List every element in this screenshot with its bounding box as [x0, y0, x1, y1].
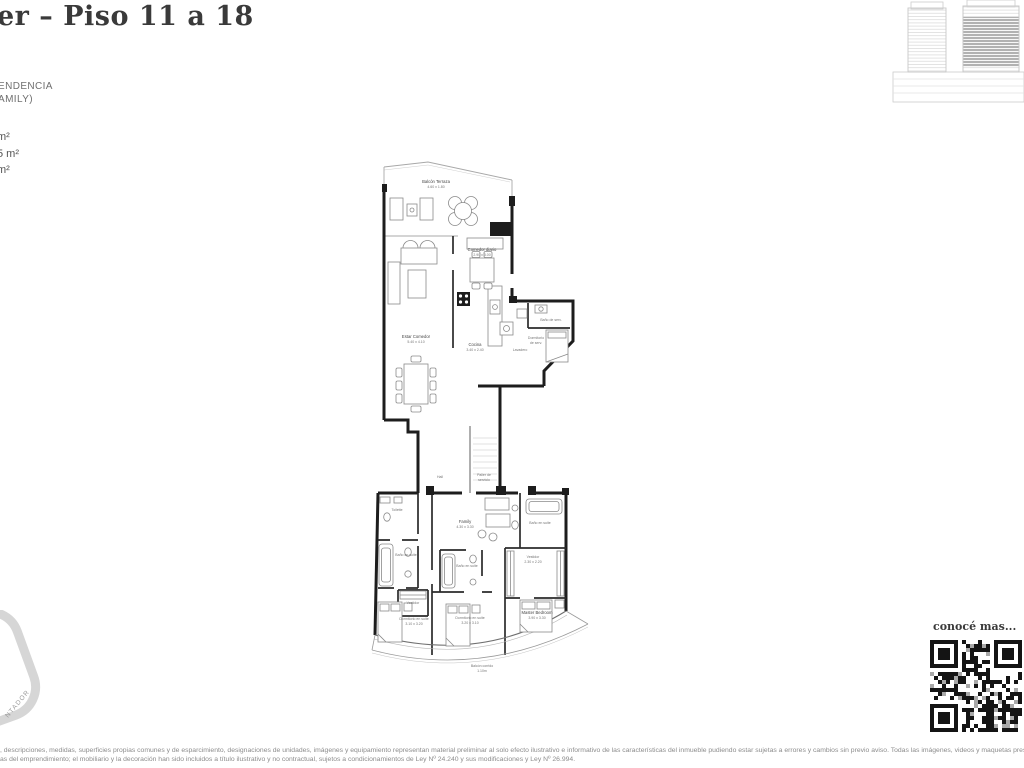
tower-right-highlighted — [963, 0, 1019, 72]
disclaimer-line1: , descripciones, medidas, superficies pr… — [0, 746, 1024, 755]
room-dims-estar-comedor: 5.40 x 4.10 — [407, 340, 424, 344]
area-line: 5 m² — [0, 146, 19, 163]
room-label-estar-comedor: Estar Comedor — [402, 334, 431, 339]
room-dims-balcon-terraza: 4.60 x 1.80 — [427, 185, 444, 189]
room-dims-dorm-suite-izq: 3.10 x 3.20 — [405, 622, 422, 626]
room-label-palier-1: Palier de — [477, 473, 491, 477]
base-podium — [893, 72, 1024, 102]
room-label-family: Family — [459, 519, 472, 524]
room-label-dorm-suite-izq: Dormitorio en suite — [399, 617, 428, 621]
page-title: er – Piso 11 a 18 — [0, 1, 254, 32]
room-label-toilette: Toilette — [391, 508, 402, 512]
family-room-icons — [478, 498, 510, 541]
room-label-comedor-diario: Comedor diario — [468, 247, 497, 252]
unit-type-line2: AMILY) — [0, 93, 53, 106]
room-dims-cocina: 3.40 x 2.40 — [466, 348, 483, 352]
room-dims-vestidor-der: 2.30 x 2.20 — [524, 560, 541, 564]
unit-areas: m² 5 m² m² — [0, 129, 19, 179]
room-label-dorm-serv-2: de serv. — [530, 341, 542, 345]
room-label-bano-suite-der: Baño en suite — [529, 521, 550, 525]
developer-stamp: NTADOR — [0, 610, 88, 768]
room-label-bano-serv: Baño de serv. — [540, 318, 561, 322]
room-dims-comedor-diario: 2.90 x 3.00 — [473, 253, 490, 257]
service-rooms-icons — [500, 305, 568, 362]
qr-caption: conocé mas... — [933, 620, 1016, 633]
room-label-vestidor-der: Vestidor — [527, 555, 540, 559]
room-label-hall: Hall — [437, 475, 443, 479]
room-label-palier-2: servicio — [478, 478, 490, 482]
room-dims-dorm-suite-ctr: 3.20 x 3.10 — [461, 621, 478, 625]
building-elevation-diagram — [885, 0, 1024, 115]
room-label-dorm-serv-1: Dormitorio — [528, 336, 544, 340]
room-label-cocina: Cocina — [468, 342, 482, 347]
living-room-furniture-icons — [388, 241, 437, 305]
unit-type-line1: ENDENCIA — [0, 80, 53, 93]
disclaimer-line2: as del emprendimiento; el mobiliario y l… — [0, 755, 1024, 764]
room-label-master: Master Bedroom — [522, 610, 553, 615]
bathroom-center-icons — [442, 554, 476, 588]
room-dims-balcon-corrido: 1.10m — [477, 669, 487, 673]
room-label-balcon-terraza: Balcón Terraza — [422, 179, 451, 184]
bathroom-left-icons — [379, 544, 411, 586]
qr-code — [930, 640, 1022, 732]
room-dims-master: 3.90 x 3.30 — [528, 616, 545, 620]
room-label-lavadero: Lavadero — [513, 348, 528, 352]
area-line: m² — [0, 129, 19, 146]
room-label-dorm-suite-ctr: Dormitorio en suite — [455, 616, 484, 620]
area-line: m² — [0, 162, 19, 179]
floor-plan: Balcón Terraza 4.60 x 1.80 Estar Comedor… — [370, 158, 590, 695]
unit-type-label: ENDENCIA AMILY) — [0, 80, 53, 106]
qr-code-image — [930, 640, 1022, 732]
legal-disclaimer: , descripciones, medidas, superficies pr… — [0, 746, 1024, 765]
room-label-balcon-corrido: Balcón corrido — [471, 664, 493, 668]
room-label-bano-suite-izq: Baño en suite — [395, 553, 416, 557]
balcony-furniture-icons — [390, 197, 478, 226]
tower-left — [908, 2, 946, 72]
room-label-bano-suite-ctr: Baño en suite — [456, 564, 477, 568]
breakfast-table-icon — [470, 252, 494, 290]
room-label-vestidor-izq: Vestidor — [407, 601, 420, 605]
stove-icon — [457, 292, 470, 306]
room-dims-family: 4.30 x 3.30 — [456, 525, 473, 529]
dining-table-icon — [396, 356, 436, 412]
